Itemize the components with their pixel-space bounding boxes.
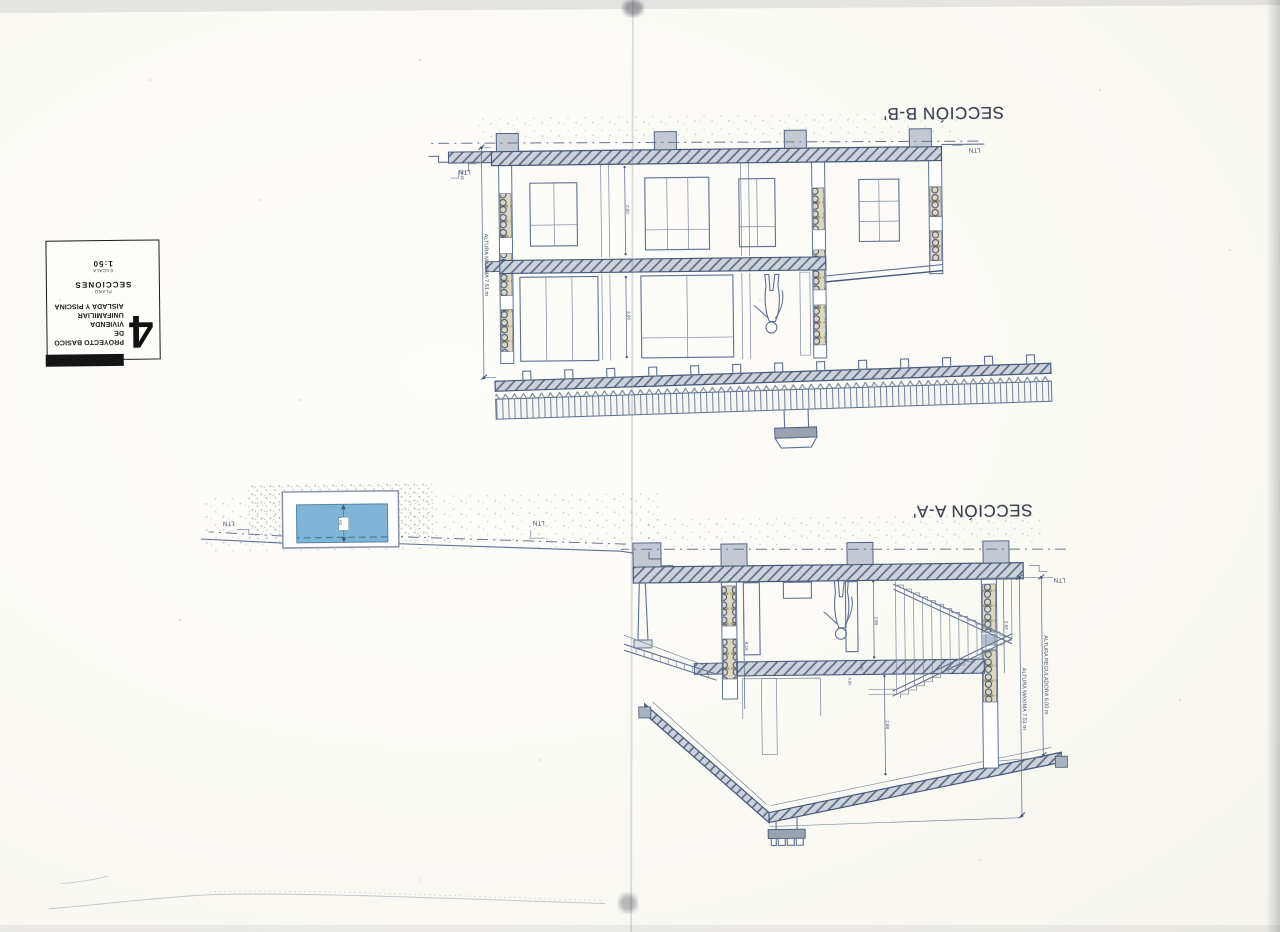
dim-bb-step: 0.45 xyxy=(460,172,465,181)
pool-depth-dim: 1.50 xyxy=(338,516,343,525)
person-figure-bb xyxy=(754,274,783,333)
title-block-bar xyxy=(46,354,124,367)
bb-lower-floor xyxy=(530,175,900,251)
rotated-drawing-sheet: et xyxy=(0,0,1280,932)
aa-interior-dims: 2.80 2.88 2.52 6.16 0.30 0.90 xyxy=(743,578,1010,777)
scanned-sheet: et xyxy=(0,0,1280,932)
dim-bb-lower: 2.60 xyxy=(625,205,630,214)
ltn-label-mid: LTN xyxy=(532,519,544,526)
project-line3: AISLADA Y PISCINA xyxy=(50,301,124,311)
project-line2: VIVIENDA UNIFAMILIAR xyxy=(50,310,124,329)
dim-aa-room2: 2.88 xyxy=(885,720,890,729)
plano-value: SECCIONES xyxy=(47,279,159,289)
dim-bb-upper: 3.06 xyxy=(626,311,631,320)
escala-value: 1:50 xyxy=(47,258,159,268)
section-bb-drawing: LTN LTN 0.45 ALTURA MAXIMA 7.51 m 3.06 2… xyxy=(428,108,1053,458)
dim-aa-room1: 2.80 xyxy=(874,616,879,625)
dim-aa-tall: 6.16 xyxy=(744,642,749,651)
project-title: PROYECTO BASICO DE VIVIENDA UNIFAMILIAR … xyxy=(50,301,124,351)
section-aa-title: SECCIÓN A-A' xyxy=(912,500,1032,521)
bb-roof xyxy=(495,354,1053,457)
chimney-bb xyxy=(774,409,817,448)
porch-column xyxy=(633,583,652,648)
sheet-number: 4 xyxy=(129,311,154,351)
pool-drawing: 1.50 xyxy=(282,491,399,548)
altura-maxima-label-bb: ALTURA MAXIMA 7.51 m xyxy=(482,234,489,297)
dim-aa-s1: 0.30 xyxy=(859,662,864,671)
dim-aa-s2: 0.90 xyxy=(847,678,852,687)
sections-drawing: et xyxy=(0,0,1280,932)
bb-upper-floor xyxy=(520,272,811,361)
title-block: 4 PROYECTO BASICO DE VIVIENDA UNIFAMILIA… xyxy=(45,239,160,360)
pencil-terrain-line xyxy=(49,870,605,909)
dim-aa-left: 2.52 xyxy=(1004,621,1009,630)
project-line1: PROYECTO BASICO DE xyxy=(50,328,124,347)
section-bb-title: SECCIÓN B-B' xyxy=(883,102,1004,123)
ltn-label-bb-left: LTN xyxy=(968,146,980,153)
person-figure-aa xyxy=(823,581,852,640)
altura-reguladora-label: ALTURA REGULADORA 6.00 m xyxy=(1042,635,1049,715)
altura-maxima-label-aa: ALTURA MAXIMA 7.51 m xyxy=(1020,668,1027,731)
section-aa-drawing: ALTURA MAXIMA 7.51 m ALTURA REGULADORA 6… xyxy=(621,514,1070,847)
ltn-label-aa: LTN xyxy=(1053,576,1065,583)
terrain-and-pool: 1.50 LTN LTN xyxy=(44,480,665,910)
ltn-label-pool: LTN xyxy=(222,520,234,527)
